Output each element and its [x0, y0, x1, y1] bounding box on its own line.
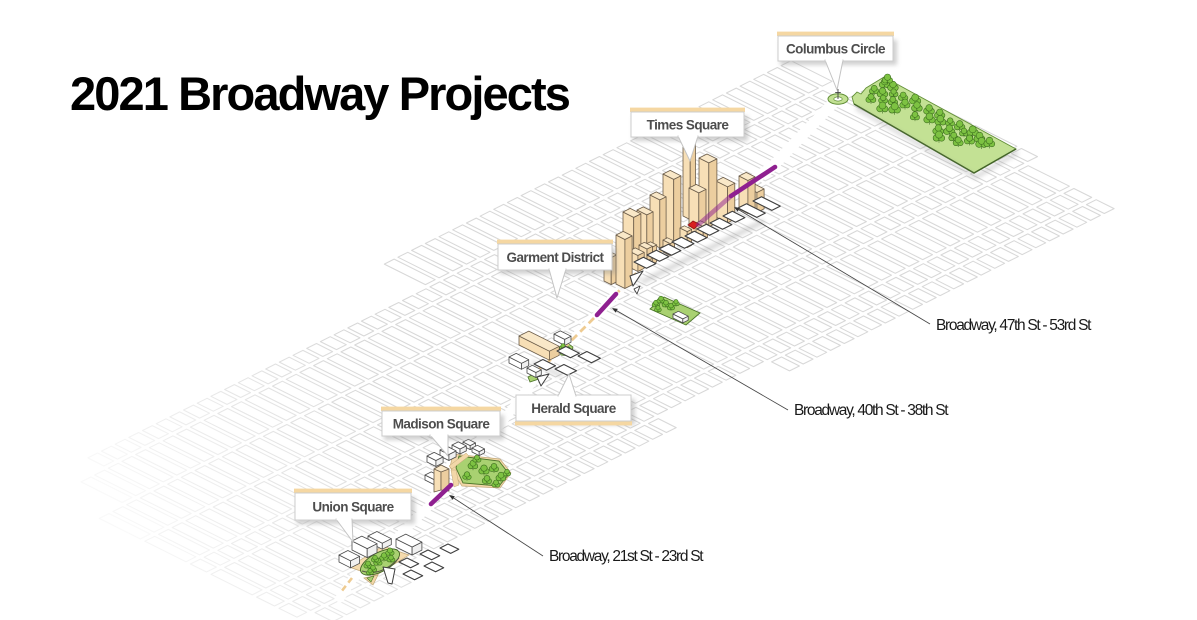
svg-text:2021 Broadway Projects: 2021 Broadway Projects [70, 67, 570, 120]
svg-text:Broadway, 47th St - 53rd St: Broadway, 47th St - 53rd St [936, 317, 1092, 334]
svg-text:Broadway, 40th St - 38th St: Broadway, 40th St - 38th St [794, 402, 949, 419]
svg-text:Times Square: Times Square [647, 117, 730, 132]
svg-text:Garment District: Garment District [507, 250, 605, 265]
svg-text:Union Square: Union Square [312, 499, 394, 514]
svg-text:Madison Square: Madison Square [393, 416, 491, 431]
svg-text:Herald Square: Herald Square [531, 401, 616, 416]
svg-text:Columbus Circle: Columbus Circle [786, 41, 886, 56]
svg-text:Broadway, 21st St - 23rd St: Broadway, 21st St - 23rd St [549, 548, 704, 565]
